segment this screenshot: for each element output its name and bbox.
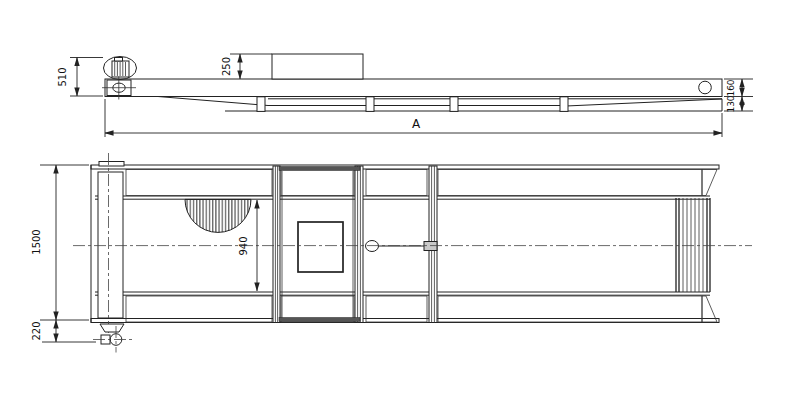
drawing-canvas: 510 250 A 160 130 — [0, 0, 800, 400]
tail-roller — [676, 198, 710, 292]
mesh-panels-top — [126, 170, 717, 196]
roller-bracket — [99, 162, 124, 167]
dim-220: 220 — [31, 320, 96, 342]
conveyor-technical-drawing: 510 250 A 160 130 — [0, 0, 800, 400]
rail-tab — [450, 97, 458, 112]
side-view: 510 250 A 160 130 — [57, 54, 753, 137]
inspection-box — [298, 222, 343, 272]
rail-tab — [560, 97, 568, 112]
head-roller — [98, 153, 124, 333]
top-box — [272, 54, 363, 79]
gear-motor — [104, 57, 137, 80]
mesh-panel-taper — [702, 170, 717, 196]
dim-510: 510 — [57, 58, 103, 97]
rail-tab — [257, 97, 265, 112]
cover-plate-edge — [279, 167, 360, 171]
plan-view: 1500 220 940 — [31, 153, 752, 353]
dim-130-label: 130 — [726, 95, 736, 112]
dim-A-label: A — [412, 117, 421, 131]
mesh-panel — [366, 170, 427, 196]
cross-member — [355, 166, 363, 323]
dim-160-130: 160 130 — [724, 79, 753, 113]
cross-member — [273, 166, 280, 323]
dim-1500-label: 1500 — [31, 229, 42, 254]
dim-250-label: 250 — [221, 57, 232, 76]
caster-wheel — [93, 324, 133, 353]
dim-A: A — [105, 99, 722, 137]
main-beam — [105, 79, 722, 97]
cover-plate-edge — [279, 318, 360, 322]
mesh-panel — [126, 170, 272, 196]
drive-pulley — [185, 199, 251, 232]
caster-bracket — [100, 324, 124, 332]
dim-160-label: 160 — [726, 79, 736, 96]
lower-rail — [158, 97, 722, 112]
dim-510-label: 510 — [57, 67, 68, 86]
frame-top-bar — [91, 165, 719, 169]
mesh-panel — [438, 170, 702, 196]
mesh-panel — [281, 170, 354, 196]
dim-250: 250 — [221, 54, 272, 79]
rail-tab — [366, 97, 374, 112]
dim-1500: 1500 — [31, 165, 89, 320]
frame-outline — [91, 165, 719, 323]
dim-220-label: 220 — [31, 321, 42, 340]
dim-940-label: 940 — [238, 236, 249, 255]
